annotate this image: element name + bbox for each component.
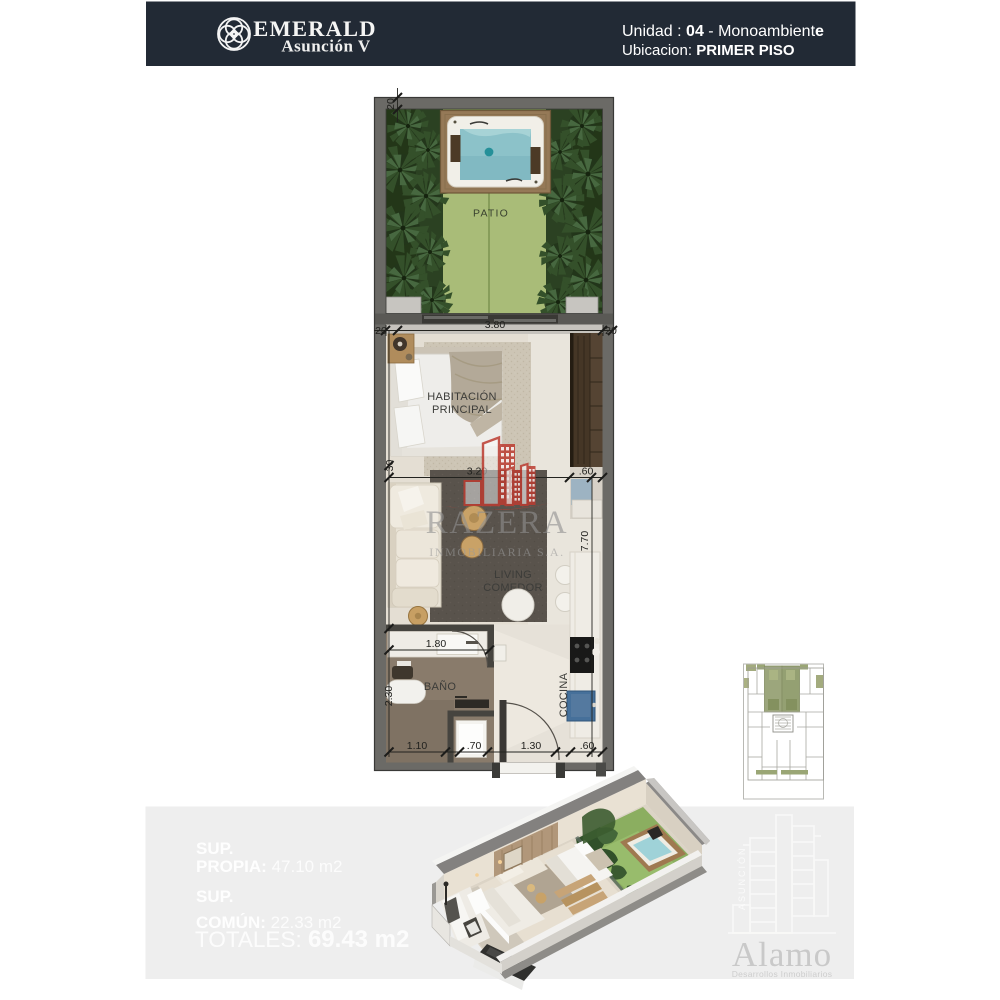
svg-text:7.70: 7.70 <box>579 531 591 552</box>
svg-text:COCINA: COCINA <box>558 672 570 717</box>
svg-text:BAÑO: BAÑO <box>424 680 457 693</box>
svg-text:ASUNCIÓN: ASUNCIÓN <box>737 846 747 910</box>
svg-text:Desarrollos Inmobiliarios: Desarrollos Inmobiliarios <box>732 969 833 979</box>
svg-text:20: 20 <box>605 325 617 337</box>
svg-text:Asunción V: Asunción V <box>281 37 370 56</box>
svg-text:.30: .30 <box>384 460 396 475</box>
svg-text:HABITACIÓN: HABITACIÓN <box>427 390 496 403</box>
svg-text:SUP.: SUP. <box>196 839 234 858</box>
svg-text:INMOBILIARIA S.A.: INMOBILIARIA S.A. <box>429 545 565 559</box>
svg-text:Unidad : 04 - Monoambiente: Unidad : 04 - Monoambiente <box>622 23 824 40</box>
svg-text:LIVING: LIVING <box>494 569 532 581</box>
svg-text:20: 20 <box>385 98 397 110</box>
svg-text:.60: .60 <box>580 740 595 752</box>
svg-text:2.30: 2.30 <box>383 686 395 707</box>
svg-text:PATIO: PATIO <box>473 208 509 220</box>
svg-text:.70: .70 <box>467 740 482 752</box>
svg-text:RAZERA: RAZERA <box>426 505 569 541</box>
svg-text:TOTALES: 69.43 m2: TOTALES: 69.43 m2 <box>195 926 409 953</box>
svg-text:SUP.: SUP. <box>196 887 234 906</box>
svg-text:Ubicacion: PRIMER PISO: Ubicacion: PRIMER PISO <box>622 42 795 59</box>
svg-text:.60: .60 <box>579 466 594 478</box>
svg-text:PRINCIPAL: PRINCIPAL <box>432 404 492 416</box>
svg-text:20: 20 <box>375 325 387 337</box>
svg-text:3.80: 3.80 <box>485 319 506 331</box>
svg-text:1.10: 1.10 <box>407 740 428 752</box>
svg-text:PROPIA: 47.10 m2: PROPIA: 47.10 m2 <box>196 857 342 876</box>
svg-text:1.80: 1.80 <box>426 638 447 650</box>
svg-text:1.30: 1.30 <box>521 740 542 752</box>
